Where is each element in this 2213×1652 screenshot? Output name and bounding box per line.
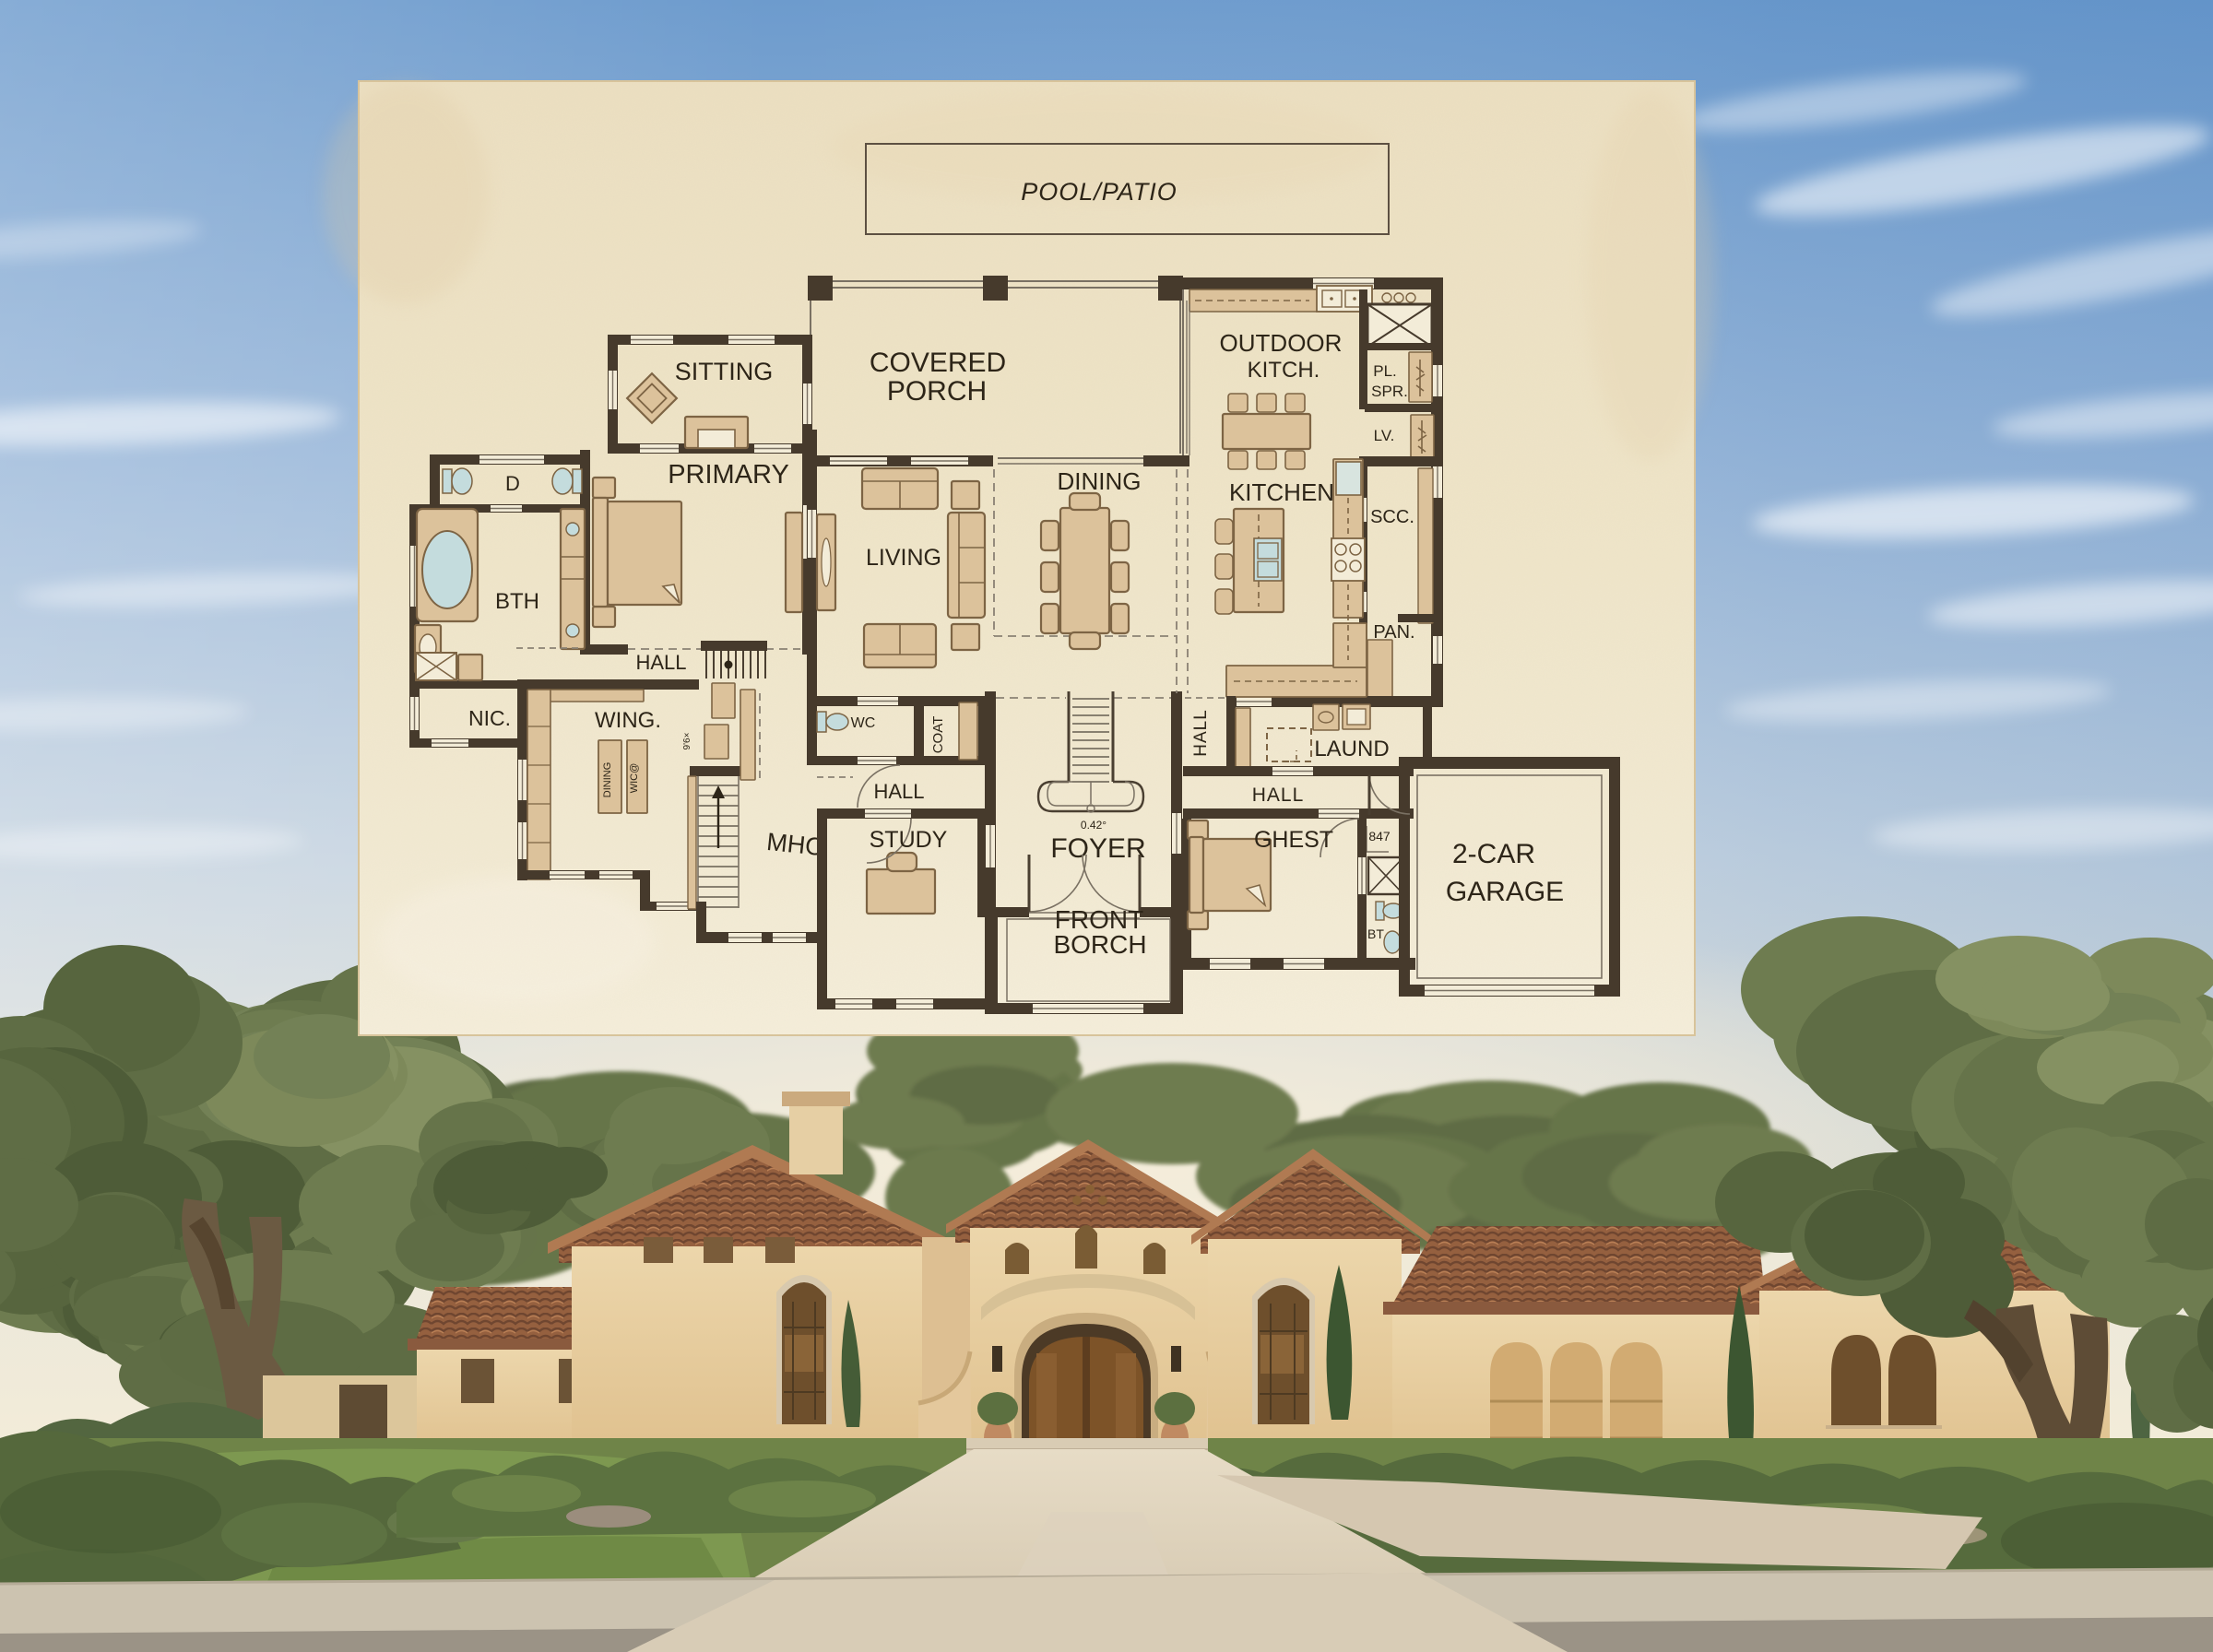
- svg-text:PL.: PL.: [1373, 362, 1397, 380]
- svg-text:HALL: HALL: [1252, 785, 1305, 806]
- svg-text:PORCH: PORCH: [887, 376, 987, 407]
- svg-text:DINING: DINING: [602, 762, 613, 798]
- svg-text:2-CAR: 2-CAR: [1452, 839, 1535, 869]
- svg-text:GARAGE: GARAGE: [1446, 877, 1564, 907]
- svg-text:POOL/PATIO: POOL/PATIO: [1021, 178, 1178, 206]
- svg-text:LAUND: LAUND: [1314, 737, 1389, 761]
- svg-text:OUTDOOR: OUTDOOR: [1220, 329, 1343, 357]
- svg-text:LV.: LV.: [1374, 427, 1395, 444]
- svg-text:WC: WC: [851, 715, 876, 731]
- svg-text:SITTING: SITTING: [675, 358, 774, 385]
- svg-text:847: 847: [1368, 829, 1391, 844]
- svg-text:WING.: WING.: [595, 708, 661, 733]
- svg-text:HALL: HALL: [873, 780, 924, 803]
- svg-text:PRIMARY: PRIMARY: [668, 460, 789, 490]
- svg-text:D: D: [505, 472, 520, 495]
- svg-text:BORCH: BORCH: [1053, 930, 1146, 959]
- svg-text:STUDY: STUDY: [870, 827, 948, 853]
- svg-text:HALL: HALL: [635, 651, 686, 674]
- svg-text:BTH: BTH: [495, 589, 539, 614]
- svg-text:LIVING: LIVING: [866, 545, 941, 571]
- svg-text:KITCHEN: KITCHEN: [1229, 478, 1334, 506]
- svg-text:GHEST: GHEST: [1254, 827, 1333, 853]
- svg-text:0.42°: 0.42°: [1081, 819, 1106, 832]
- svg-text:SPR.: SPR.: [1371, 383, 1408, 400]
- svg-text:BT: BT: [1367, 926, 1384, 941]
- svg-text:FOYER: FOYER: [1050, 833, 1145, 864]
- svg-text:WIC@: WIC@: [629, 763, 640, 794]
- svg-text:DINING: DINING: [1058, 467, 1142, 495]
- svg-text:9'6×: 9'6×: [682, 732, 692, 749]
- svg-text:NIC.: NIC.: [468, 706, 511, 730]
- svg-text:COAT: COAT: [930, 716, 946, 754]
- svg-text:KITCH.: KITCH.: [1248, 358, 1320, 383]
- svg-text:SCC.: SCC.: [1370, 507, 1414, 527]
- svg-text:COVERED: COVERED: [870, 348, 1006, 378]
- svg-text:HALL: HALL: [1191, 709, 1211, 757]
